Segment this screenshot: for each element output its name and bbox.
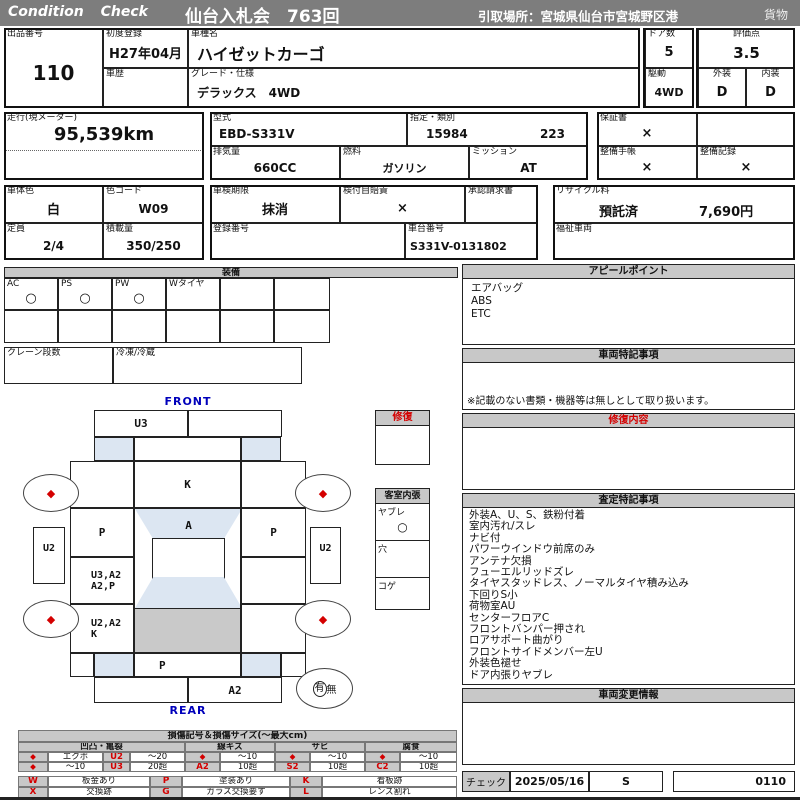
repair-content-box: 修復内容 <box>462 413 795 490</box>
vehicle-notes-title: 車両特記事項 <box>463 349 794 363</box>
diagram-cowl-left <box>94 437 134 461</box>
appeal-points-box: アピールポイント エアバッグ ABS ETC <box>462 264 795 345</box>
diagram-door-front-left: P <box>70 508 134 557</box>
vehicle-notes-footnote: ※記載のない書類・機器等は無しとして取り扱います。 <box>467 392 714 407</box>
lot-number-value: 110 <box>5 38 102 107</box>
windshield-code: A <box>185 519 192 532</box>
assessment-item: 荷物室AU <box>469 601 788 612</box>
diagram-quarter-left: U2,A2 K <box>70 604 134 653</box>
door-front-right-code: P <box>270 526 277 539</box>
roof-shape <box>152 538 225 579</box>
appeal-points-title: アピールポイント <box>463 265 794 279</box>
mileage-divider <box>5 150 203 151</box>
capacity-value: 2/4 <box>5 233 102 259</box>
field-mileage: 走行(現メーター) 95,539km <box>4 112 204 180</box>
diagram-rear-patch-right <box>241 653 281 677</box>
scratch-size-1: 〜10 <box>220 752 275 762</box>
diagram-front-bumper-left: U3 <box>94 410 188 437</box>
field-displacement: 排気量 660CC <box>210 146 340 180</box>
field-interior-grade: 内装 D <box>746 68 795 108</box>
equip-empty-1 <box>220 278 274 310</box>
model-code-value: EBD-S331V <box>211 122 406 145</box>
door-front-left-code: P <box>99 526 106 539</box>
scratch-size-2: 10超 <box>220 762 275 772</box>
field-lot-number: 出品番号 110 <box>4 28 103 108</box>
equip-empty-7 <box>220 310 274 343</box>
field-blank-cell <box>697 112 795 146</box>
diagram-rear-gate: P <box>134 653 241 677</box>
equip-ac-value: ○ <box>5 288 57 309</box>
wheel-front-right-damage-icon: ◆ <box>319 488 327 499</box>
diagram-front-fender-right <box>241 461 306 508</box>
mileage-value: 95,539km <box>5 121 203 147</box>
field-maintenance-record: 整備記録 × <box>697 146 795 180</box>
equip-empty-5 <box>112 310 166 343</box>
field-maintenance-book: 整備手帳 × <box>597 146 697 180</box>
appeal-points-body: エアバッグ ABS ETC <box>463 279 794 324</box>
code-w-label: 板金あり <box>48 776 150 787</box>
cabin-row-hole: 穴 <box>376 541 429 578</box>
rear-window-shape <box>135 577 241 608</box>
recycle-fee-label: リサイクル料 <box>556 187 610 197</box>
door-rear-left-code2: A2,P <box>91 581 115 592</box>
field-recycle-fee: リサイクル料 預託済 7,690円 <box>553 185 795 223</box>
side-sill-left-code: U2 <box>43 543 55 554</box>
equip-pw: PW ○ <box>112 278 166 310</box>
check-label-cell: チェック <box>462 771 510 792</box>
field-class-number: 指定・類別 15984 223 <box>407 112 588 146</box>
field-model-name: 車種名 ハイゼットカーゴ <box>188 28 640 68</box>
spare-has-mark: 有 <box>313 681 327 697</box>
field-warranty-book: 保証書 × <box>597 112 697 146</box>
field-first-registration: 初度登録 H27年04月 <box>103 28 188 68</box>
legend-group-dent: 凹凸・亀裂 <box>18 742 185 752</box>
field-registration-number: 登録番号 <box>210 223 405 260</box>
legend-group-corrosion: 腐食 <box>365 742 457 752</box>
assessment-notes-title: 査定特記事項 <box>463 494 794 508</box>
assessment-item: パワーウインドウ前席のみ <box>469 544 788 555</box>
field-fuel: 燃料 ガソリン <box>340 146 469 180</box>
diagram-cowl-right <box>241 437 281 461</box>
repair-content-title: 修復内容 <box>463 414 794 428</box>
crane-label: クレーン段数 <box>7 349 61 359</box>
rear-bumper-code: A2 <box>228 684 241 697</box>
equip-empty-2 <box>274 278 330 310</box>
approval-request-value <box>466 195 537 222</box>
dent-sym-1-icon: ◆ <box>18 752 48 762</box>
assessment-item: 外装色褪せ <box>469 658 788 669</box>
field-crane: クレーン段数 <box>4 347 113 384</box>
rust-size-2: 10超 <box>310 762 365 772</box>
diagram-door-rear-left: U3,A2 A2,P <box>70 557 134 604</box>
door-rear-left-code1: U3,A2 <box>91 570 121 581</box>
rear-label: REAR <box>150 704 226 717</box>
check-code-cell: 0110 <box>673 771 795 792</box>
auction-sheet: Condition Check 仙台入札会 763回 引取場所：宮城県仙台市宮城… <box>0 0 800 800</box>
field-load-capacity: 積載量 350/250 <box>103 223 204 260</box>
assessment-item: 室内汚れ/スレ <box>469 521 788 532</box>
rust-code-2: S2 <box>275 762 310 772</box>
legend-group-rust: サビ <box>275 742 365 752</box>
equip-empty-3 <box>4 310 58 343</box>
corrosion-sym-1-icon: ◆ <box>365 752 400 762</box>
change-info-box: 車両変更情報 <box>462 688 795 765</box>
repair-box-title: 修復 <box>376 411 429 426</box>
cabin-burn-value <box>376 587 429 613</box>
transmission-value: AT <box>470 156 587 179</box>
model-name-value: ハイゼットカーゴ <box>189 38 639 67</box>
wheel-rear-left: ◆ <box>23 600 79 638</box>
diagram-rear-bumper-left <box>94 677 188 703</box>
car-history-value <box>104 78 187 107</box>
auction-title: 仙台入札会 763回 <box>185 2 340 27</box>
diagram-rear-corner-right <box>281 653 306 677</box>
cabin-tear-value: ○ <box>376 513 429 540</box>
corrosion-size-2: 10超 <box>400 762 457 772</box>
recycle-fee-status: 預託済 <box>599 201 638 220</box>
rear-gate-code: P <box>159 659 166 672</box>
field-freezer: 冷凍/冷蔵 <box>113 347 302 384</box>
wheel-rear-left-damage-icon: ◆ <box>47 614 55 625</box>
fuel-value: ガソリン <box>341 156 468 179</box>
diagram-rear-patch-left <box>94 653 134 677</box>
side-sill-right-code: U2 <box>319 543 331 554</box>
dent-code-1: U2 <box>103 752 130 762</box>
corrosion-size-1: 〜10 <box>400 752 457 762</box>
field-insurance: 検付自賠責 × <box>340 185 465 223</box>
diagram-front-fender-left <box>70 461 134 508</box>
code-w: W <box>18 776 48 787</box>
hood-code: K <box>184 478 191 491</box>
field-exterior-grade: 外装 D <box>698 68 746 108</box>
diagram-door-rear-right <box>241 557 306 604</box>
wheel-front-left-damage-icon: ◆ <box>47 488 55 499</box>
assessment-item: 下回りS小 <box>469 590 788 601</box>
warranty-book-value: × <box>598 122 696 145</box>
field-approval-request: 承認請求書 <box>465 185 538 223</box>
equip-ps: PS ○ <box>58 278 112 310</box>
spare-none-mark: 無 <box>327 681 337 696</box>
equip-wtire-value <box>167 288 219 309</box>
quarter-left-code2: K <box>91 629 97 640</box>
wheel-front-right: ◆ <box>295 474 351 512</box>
front-bumper-left-code: U3 <box>134 417 147 430</box>
maintenance-record-value: × <box>698 156 794 179</box>
field-model-code: 型式 EBD-S331V <box>210 112 407 146</box>
assessment-item: ドア内張りヤブレ <box>469 670 788 681</box>
quarter-left-code1: U2,A2 <box>91 618 121 629</box>
cabin-row-burn: コゲ <box>376 578 429 613</box>
equip-ac: AC ○ <box>4 278 58 310</box>
cabin-row-tear: ヤブレ ○ <box>376 504 429 541</box>
field-inspection-expiry: 車検期限 抹消 <box>210 185 340 223</box>
diagram-side-sill-right: U2 <box>310 527 341 584</box>
field-doors: ドア数 5 <box>645 28 693 68</box>
diagram-hood: K <box>134 461 241 508</box>
class-number-label: 指定・類別 <box>410 114 455 124</box>
welfare-vehicle-value <box>554 233 794 259</box>
field-capacity: 定員 2/4 <box>4 223 103 260</box>
doors-value: 5 <box>646 38 692 67</box>
brand-title: Condition Check <box>8 4 148 20</box>
field-car-history: 車歴 <box>103 68 188 108</box>
field-drivetrain: 駆動 4WD <box>645 68 693 108</box>
dent-size-1: 〜20 <box>130 752 185 762</box>
color-code-value: W09 <box>104 195 203 222</box>
diagram-front-bumper-right <box>188 410 282 437</box>
chassis-number-value: S331V-0131802 <box>406 233 537 259</box>
dent-sym-2-icon: ◆ <box>18 762 48 772</box>
class-number-value1: 15984 <box>426 127 468 141</box>
exterior-grade-value: D <box>699 78 745 107</box>
code-k: K <box>290 776 322 787</box>
diagram-center-column: A <box>134 508 241 653</box>
dent-code-2: U3 <box>103 762 130 772</box>
wheel-front-left: ◆ <box>23 474 79 512</box>
diagram-rear-bumper-right: A2 <box>188 677 282 703</box>
equip-empty-6 <box>166 310 220 343</box>
cargo-bed-shape <box>135 608 241 653</box>
field-chassis-number: 車台番号 S331V-0131802 <box>405 223 538 260</box>
assessment-notes-body: 外装A、U、S、鉄粉付着 室内汚れ/スレ ナビ付 パワーウインドウ前席のみ アン… <box>463 508 794 683</box>
code-p-label: 塗装あり <box>182 776 290 787</box>
equip-empty-4 <box>58 310 112 343</box>
cargo-tag: 貨物 <box>764 6 788 23</box>
interior-grade-value: D <box>747 78 794 107</box>
field-grade-spec: グレード・仕様 デラックス 4WD <box>188 68 640 108</box>
rust-sym-1-icon: ◆ <box>275 752 310 762</box>
assessment-notes-box: 査定特記事項 外装A、U、S、鉄粉付着 室内汚れ/スレ ナビ付 パワーウインドウ… <box>462 493 795 685</box>
appeal-item: エアバッグ <box>471 282 786 295</box>
corrosion-code-2: C2 <box>365 762 400 772</box>
wheel-rear-right-damage-icon: ◆ <box>319 614 327 625</box>
equip-empty-8 <box>274 310 330 343</box>
legend-title: 損傷記号＆損傷サイズ(〜最大cm) <box>18 730 457 742</box>
recycle-fee-amount: 7,690円 <box>699 201 753 220</box>
field-body-color: 車体色 白 <box>4 185 103 223</box>
legend-group-scratch: 線キズ <box>185 742 275 752</box>
scratch-sym-1-icon: ◆ <box>185 752 220 762</box>
diagram-rear-corner-left <box>70 653 94 677</box>
first-registration-value: H27年04月 <box>104 38 187 67</box>
inspection-expiry-value: 抹消 <box>211 195 339 222</box>
windshield-code-wrap: A <box>135 514 241 533</box>
diagram-door-front-right: P <box>241 508 306 557</box>
score-value: 3.5 <box>699 38 794 67</box>
cabin-lining-title: 客室内張 <box>376 489 429 504</box>
equipment-header: 装備 <box>4 267 458 278</box>
field-welfare-vehicle: 福祉車両 <box>553 223 795 260</box>
pickup-location: 引取場所：宮城県仙台市宮城野区港 <box>478 6 678 25</box>
displacement-value: 660CC <box>211 156 339 179</box>
front-label: FRONT <box>150 395 226 408</box>
spare-tire-indicator: 有無 <box>296 668 353 709</box>
equip-pw-value: ○ <box>113 288 165 309</box>
load-capacity-value: 350/250 <box>104 233 203 259</box>
dent-size-2: 20超 <box>130 762 185 772</box>
grade-spec-value: デラックス 4WD <box>189 78 639 107</box>
dent-label-1: エクボ <box>48 752 103 762</box>
equip-ps-value: ○ <box>59 288 111 309</box>
freezer-label: 冷凍/冷蔵 <box>116 349 155 359</box>
code-p: P <box>150 776 182 787</box>
maintenance-book-value: × <box>598 156 696 179</box>
drivetrain-value: 4WD <box>646 78 692 107</box>
insurance-value: × <box>341 195 464 222</box>
cabin-lining-box: 客室内張 ヤブレ ○ 穴 コゲ <box>375 488 430 610</box>
cabin-hole-value <box>376 550 429 577</box>
body-color-value: 白 <box>5 195 102 222</box>
change-info-title: 車両変更情報 <box>463 689 794 703</box>
scratch-code-2: A2 <box>185 762 220 772</box>
field-color-code: 色コード W09 <box>103 185 204 223</box>
header-bar: Condition Check 仙台入札会 763回 引取場所：宮城県仙台市宮城… <box>0 0 800 26</box>
check-date-cell: 2025/05/16 <box>510 771 589 792</box>
equip-wtire: Wタイヤ <box>166 278 220 310</box>
rust-size-1: 〜10 <box>310 752 365 762</box>
repair-box: 修復 <box>375 410 430 465</box>
check-grade-cell: S <box>589 771 663 792</box>
code-k-label: 看板跡 <box>322 776 457 787</box>
class-number-value2: 223 <box>540 127 565 141</box>
vehicle-notes-box: 車両特記事項 ※記載のない書類・機器等は無しとして取り扱います。 <box>462 348 795 410</box>
field-score: 評価点 3.5 <box>698 28 795 68</box>
wheel-rear-right: ◆ <box>295 600 351 638</box>
dent-label-2: 〜10 <box>48 762 103 772</box>
diagram-cowl-center <box>134 437 241 461</box>
appeal-item: ETC <box>471 308 786 321</box>
field-transmission: ミッション AT <box>469 146 588 180</box>
diagram-side-sill-left: U2 <box>33 527 65 584</box>
appeal-item: ABS <box>471 295 786 308</box>
registration-number-value <box>211 233 404 259</box>
